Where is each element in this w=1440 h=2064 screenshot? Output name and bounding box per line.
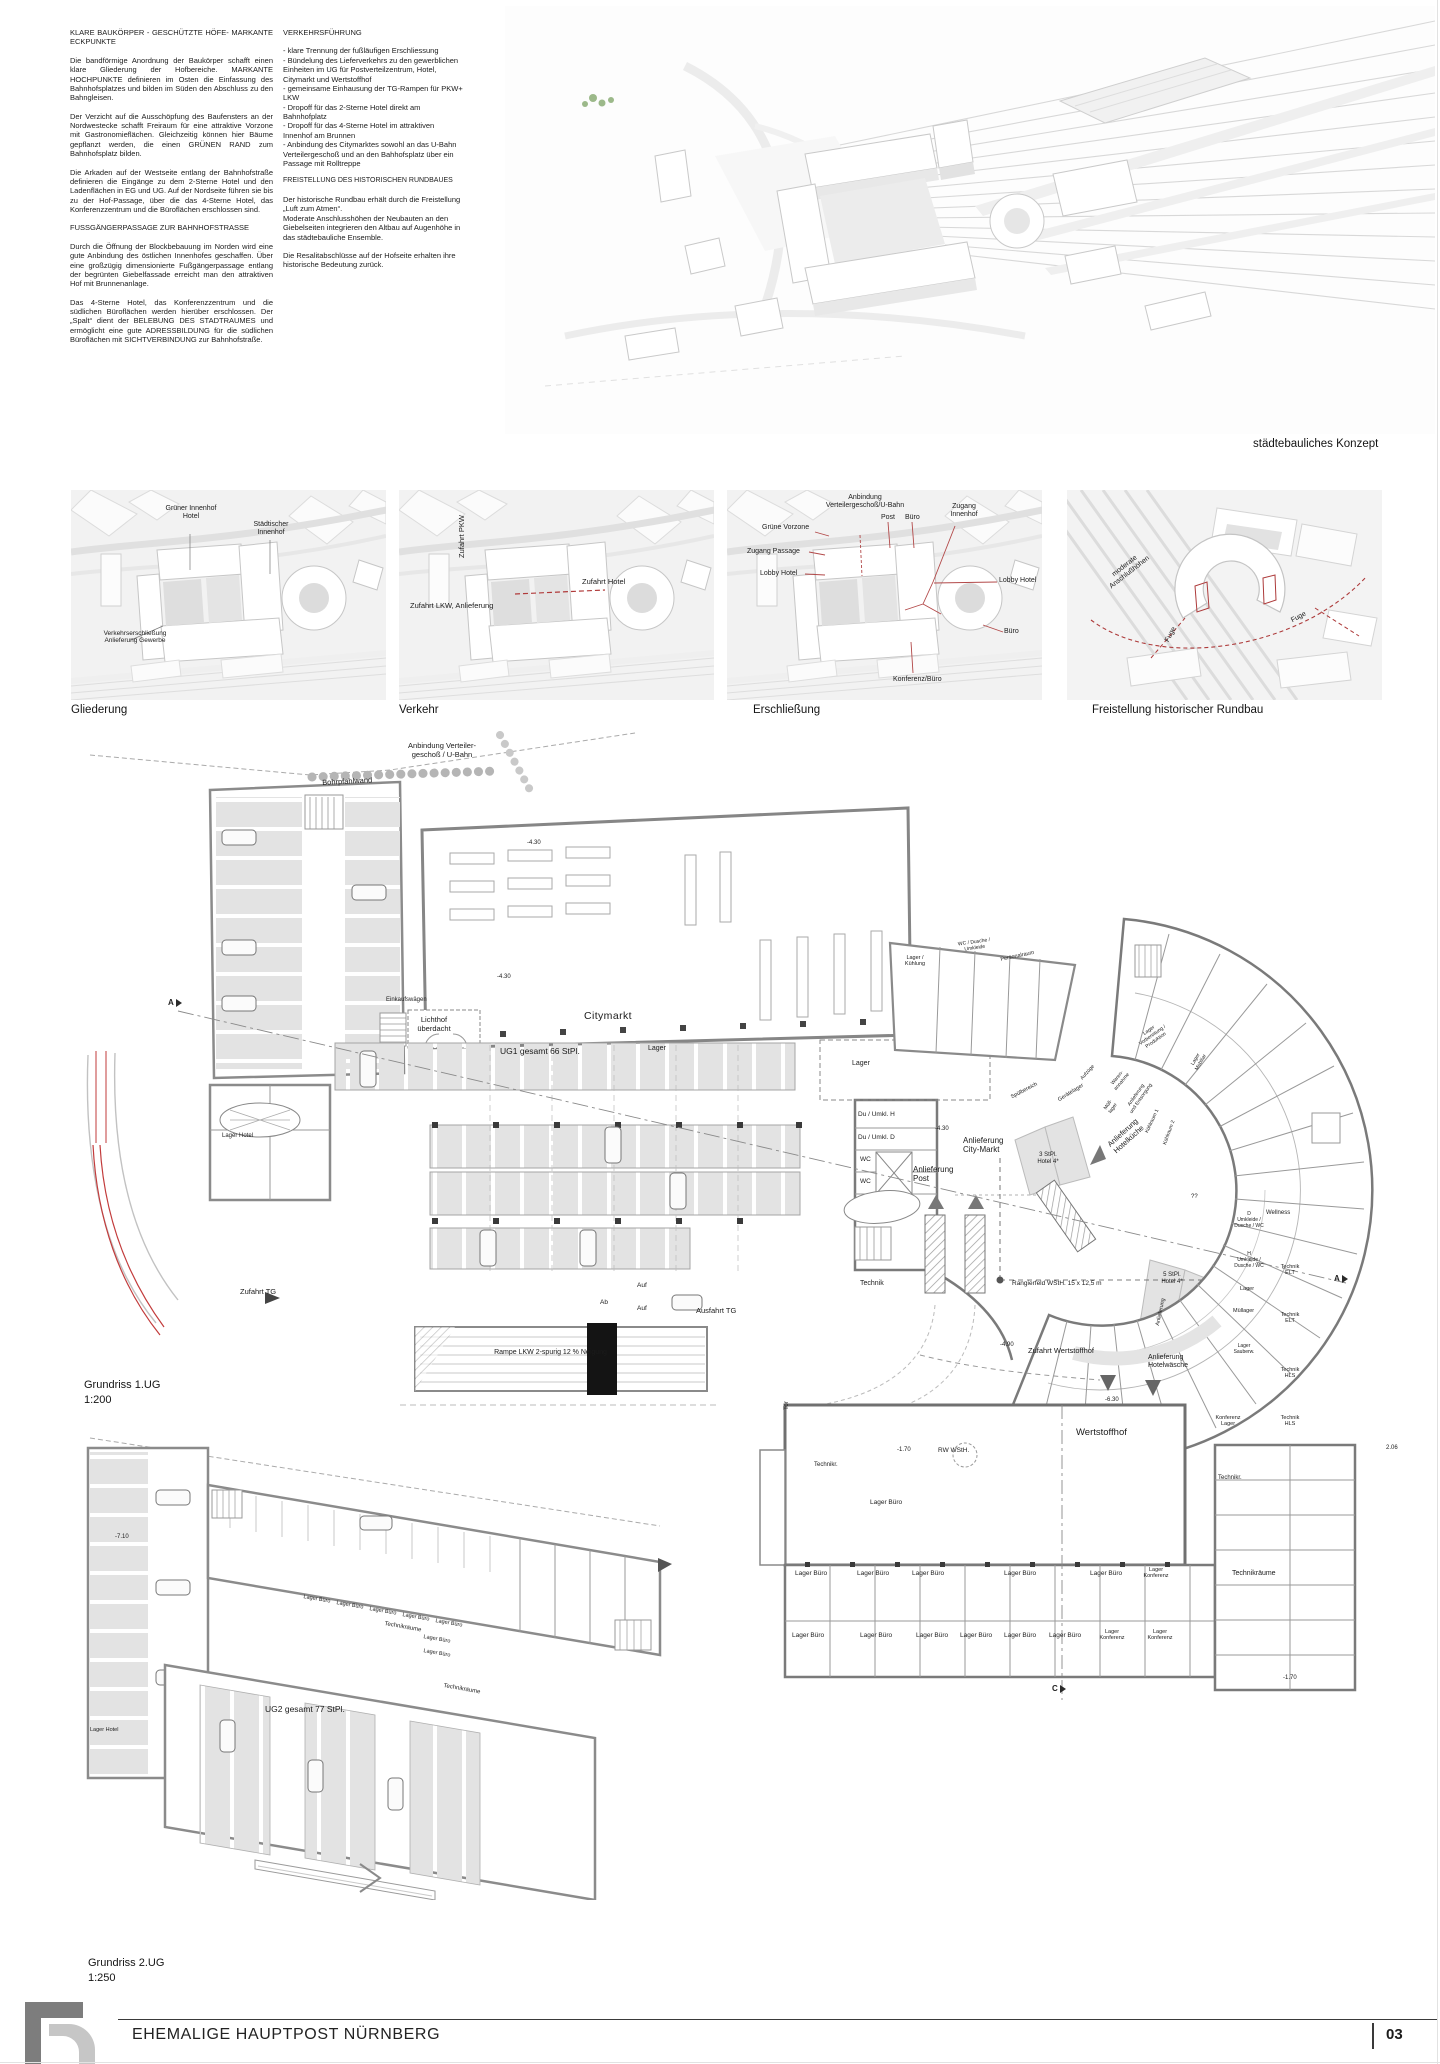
plan-label-rampe: Rampe LKW 2-spurig 12 % Neigung xyxy=(458,1349,643,1357)
traffic-bullet: - Dropoff für das 2-Sterne Hotel direkt … xyxy=(283,103,463,122)
room-label: Lager Sauberw. xyxy=(1226,1344,1262,1356)
diagram-label: Grüner Innenhof Hotel xyxy=(132,505,250,521)
traffic-bullet: - Bündelung des Lieferverkehrs zu den ge… xyxy=(283,56,463,84)
intro-paragraph: Der historische Rundbau erhält durch die… xyxy=(283,195,463,214)
plan1-title: Grundriss 1.UG 1:200 xyxy=(84,1378,160,1409)
room-label: D Umkleide / Dusche / WC xyxy=(1228,1212,1270,1229)
page-edge-bottom xyxy=(0,2062,1440,2063)
competition-sheet: { "header": { "number": "490490" }, "int… xyxy=(0,0,1440,2064)
freistellung-heading: FREISTELLUNG DES HISTORISCHEN RUNDBAUES xyxy=(283,177,463,186)
diagram-label: Büro xyxy=(1004,628,1019,636)
room-label: Lager Büro xyxy=(916,1632,948,1639)
diagram-freistellung xyxy=(1067,490,1382,700)
plan-label-zufahrt-tg: Zufahrt TG xyxy=(240,1288,276,1297)
sheet-number: 03 xyxy=(1386,2026,1403,2043)
elevation-mark: -4.30 xyxy=(935,1126,949,1133)
section-marker-c: C xyxy=(1052,1684,1066,1693)
section-marker-a: A xyxy=(1334,1274,1348,1283)
elevation-mark: -4.30 xyxy=(527,840,541,847)
elevation-mark: -4.90 xyxy=(1000,1342,1014,1349)
room-label: Lager xyxy=(852,1060,870,1068)
ring-building xyxy=(890,919,1372,1462)
concept-aerial-render xyxy=(505,6,1435,434)
diagram-label: Zugang Passage xyxy=(747,548,800,556)
room-label: Lager Büro xyxy=(1004,1570,1036,1577)
diagram-label: Zufahrt PKW xyxy=(458,515,467,558)
plan2-drawing xyxy=(60,1430,700,1900)
ramp-direction: Ab xyxy=(600,1299,608,1306)
diagram-label: Post xyxy=(881,514,895,522)
plan-label-ug1: UG1 gesamt 66 StPl. xyxy=(500,1047,580,1057)
west-parking-wing xyxy=(210,782,404,1078)
room-label: Lager Hotel xyxy=(222,1133,253,1140)
intro-paragraph: Moderate Anschlusshöhen der Neubauten an… xyxy=(283,214,463,242)
intro-paragraph: Die bandförmige Anordnung der Baukörper … xyxy=(70,56,273,103)
service-core xyxy=(820,1040,1012,1360)
room-label: Technikr. xyxy=(1218,1475,1242,1482)
room-label: Lager Büro xyxy=(1049,1632,1081,1639)
plan-label-wertstoffhof: Wertstoffhof xyxy=(1076,1428,1127,1439)
office-logo xyxy=(25,1994,117,2064)
footer-rule xyxy=(118,2019,1438,2020)
room-label: Lager Büro xyxy=(960,1632,992,1639)
room-label: Lager Büro xyxy=(792,1632,824,1639)
room-label: Konferenz Lager xyxy=(1208,1415,1248,1428)
elevation-mark: -7.10 xyxy=(115,1534,129,1541)
room-label: Du / Umkl. H xyxy=(858,1111,895,1118)
diagram-verkehr xyxy=(399,490,714,700)
central-parking xyxy=(335,1043,802,1275)
room-label: Lager Büro xyxy=(795,1570,827,1577)
section-triangle-icon xyxy=(1060,1685,1066,1693)
room-label: Lager / Kühlung xyxy=(893,955,937,968)
diagram-label: Konferenz/Büro xyxy=(893,676,942,684)
diagram-label: Anbindung Verteilergeschoß/U-Bahn xyxy=(795,494,935,510)
diagram-gliederung xyxy=(71,490,386,700)
intro-paragraph: Durch die Öffnung der Blockbebauung im N… xyxy=(70,242,273,289)
room-label: 3 StPl. Hotel 4* xyxy=(1026,1152,1070,1166)
footer-divider xyxy=(1372,2023,1374,2049)
room-label: Wellness xyxy=(1266,1210,1290,1217)
section-marker-a: A xyxy=(168,998,182,1007)
room-label: Lager Büro xyxy=(870,1499,902,1506)
traffic-bullet: - klare Trennung der fußläufigen Erschli… xyxy=(283,46,463,55)
plan-label-anlieferung-citymarkt: Anlieferung City-Markt xyxy=(963,1136,1003,1154)
diagram-label: Städtischer Innenhof xyxy=(240,521,302,537)
room-label: Lager Büro xyxy=(857,1570,889,1577)
traffic-bullet: - gemeinsame Einhausung der TG-Rampen fü… xyxy=(283,84,463,103)
diagram-label: Zufahrt Hotel xyxy=(582,578,625,587)
ramp-direction: Auf xyxy=(637,1282,647,1289)
diagram-label: Grüne Vorzone xyxy=(762,524,809,532)
room-label: Lager Büro xyxy=(912,1570,944,1577)
section-letter: A xyxy=(1334,1274,1340,1283)
elevation-mark: -4.30 xyxy=(497,974,511,981)
plan-label-lichthof: Lichthof überdacht xyxy=(406,1016,462,1033)
elevation-mark: -1.70 xyxy=(1283,1675,1297,1682)
elevation-mark: -1.70 xyxy=(897,1447,911,1454)
room-label: H Umkleide / Dusche / WC xyxy=(1228,1252,1270,1269)
diagram-label: Zufahrt LKW, Anlieferung xyxy=(410,602,493,611)
intro-paragraph: Die Resalitabschlüsse auf der Hofseite e… xyxy=(283,251,463,270)
plan-label-anbindung: Anbindung Verteiler- geschoß / U-Bahn xyxy=(378,742,506,759)
upper-bar xyxy=(208,1485,660,1655)
room-label: Technik HLS xyxy=(1272,1415,1308,1428)
traffic-bullet: - Anbindung des Citymarktes sowohl an da… xyxy=(283,140,463,168)
intro-heading-2: FUSSGÄNGERPASSAGE ZUR BAHNHOFSTRASSE xyxy=(70,223,273,232)
plan-label-citymarkt: Citymarkt xyxy=(584,1010,632,1022)
plan-label-ug2: UG2 gesamt 77 StPl. xyxy=(265,1705,345,1715)
diagram-label: Verkehrserschließung Anlieferung Gewerbe xyxy=(90,630,180,645)
room-label: Du / Umkl. D xyxy=(858,1134,895,1141)
section-triangle-icon xyxy=(1342,1275,1348,1283)
citymarkt-hall xyxy=(422,808,911,1048)
plan2-scale: 1:250 xyxy=(88,1971,164,1986)
diagram-label: Büro xyxy=(905,514,920,522)
traffic-heading: VERKEHRSFÜHRUNG xyxy=(283,28,463,37)
diagram-label: Lobby Hotel xyxy=(999,577,1036,585)
room-label: Lager xyxy=(648,1045,666,1053)
room-label: WC xyxy=(860,1156,871,1163)
ramp-direction: Auf xyxy=(637,1305,647,1312)
room-label: Lager xyxy=(1240,1286,1254,1292)
intro-column-2: VERKEHRSFÜHRUNG - klare Trennung der fuß… xyxy=(283,28,463,270)
room-label: Lager Konferenz xyxy=(1140,1629,1180,1642)
room-label: WC xyxy=(860,1178,871,1185)
plan1-title-text: Grundriss 1.UG xyxy=(84,1378,160,1393)
room-label: Lager Büro xyxy=(1004,1632,1036,1639)
plan1-scale: 1:200 xyxy=(84,1393,160,1408)
intro-heading-1: KLARE BAUKÖRPER - GESCHÜTZTE HÖFE- MARKA… xyxy=(70,28,273,47)
plan-label-rangierfeld: Rangierfeld WStH. 15 x 12,5 m xyxy=(1012,1280,1102,1287)
room-label: Technikr. xyxy=(814,1462,838,1469)
room-label: Lager Hotel xyxy=(90,1727,118,1733)
section-letter: A xyxy=(168,998,174,1007)
intro-column-1: KLARE BAUKÖRPER - GESCHÜTZTE HÖFE- MARKA… xyxy=(70,28,273,354)
plan-label-tor: Tor xyxy=(783,1401,790,1410)
hotel-storage-block xyxy=(210,1085,330,1200)
elevation-mark: 2.06 xyxy=(1386,1445,1398,1452)
room-label: Müllager xyxy=(1233,1308,1254,1314)
elevation-mark: -6.30 xyxy=(1105,1397,1119,1404)
room-label: Lager Büro xyxy=(860,1632,892,1639)
diagram-label: Zugang Innenhof xyxy=(938,503,990,519)
intro-paragraph: Die Arkaden auf der Westseite entlang de… xyxy=(70,168,273,215)
room-label: Technikräume xyxy=(1232,1570,1276,1578)
plan-label-anlieferung-hotelwaesche: Anlieferung Hotelwäsche xyxy=(1148,1354,1188,1370)
plan-label-zufahrt-wertstoffhof: Zufahrt Wertstoffhof xyxy=(1028,1347,1094,1356)
room-label: Technik ELT xyxy=(1272,1312,1308,1325)
room-label: Lager Konferenz xyxy=(1092,1629,1132,1642)
page-edge-right xyxy=(1437,0,1438,2064)
section-triangle-icon xyxy=(176,999,182,1007)
room-label: Technik xyxy=(860,1280,884,1288)
project-title: EHEMALIGE HAUPTPOST NÜRNBERG xyxy=(132,2026,440,2044)
room-label: ?? xyxy=(1191,1194,1198,1201)
room-label: 5 StPl. Hotel 4* xyxy=(1150,1272,1194,1286)
traffic-bullet: - Dropoff für das 4-Sterne Hotel im attr… xyxy=(283,121,463,140)
room-label: Lager Konferenz xyxy=(1136,1567,1176,1580)
room-label: Technik ELT xyxy=(1272,1264,1308,1277)
plan-label-anlieferung-post: Anlieferung Post xyxy=(913,1165,953,1183)
plan2-title-text: Grundriss 2.UG xyxy=(88,1956,164,1971)
concept-caption: städtebauliches Konzept xyxy=(1253,438,1378,450)
plan-label-ausfahrt-tg: Ausfahrt TG xyxy=(696,1307,736,1316)
section-letter: C xyxy=(1052,1684,1058,1693)
room-label: RW WStH. xyxy=(938,1447,969,1454)
room-label: Technik HLS xyxy=(1272,1367,1308,1380)
diagram-label: Lobby Hotel xyxy=(760,570,797,578)
plan-label-einkaufswaegen: Einkaufswägen xyxy=(386,997,427,1004)
intro-paragraph: Der Verzicht auf die Ausschöpfung des Ba… xyxy=(70,112,273,159)
intro-paragraph: Das 4-Sterne Hotel, das Konferenzzentrum… xyxy=(70,298,273,345)
room-label: Lager Büro xyxy=(1090,1570,1122,1577)
plan2-title: Grundriss 2.UG 1:250 xyxy=(88,1956,164,1987)
